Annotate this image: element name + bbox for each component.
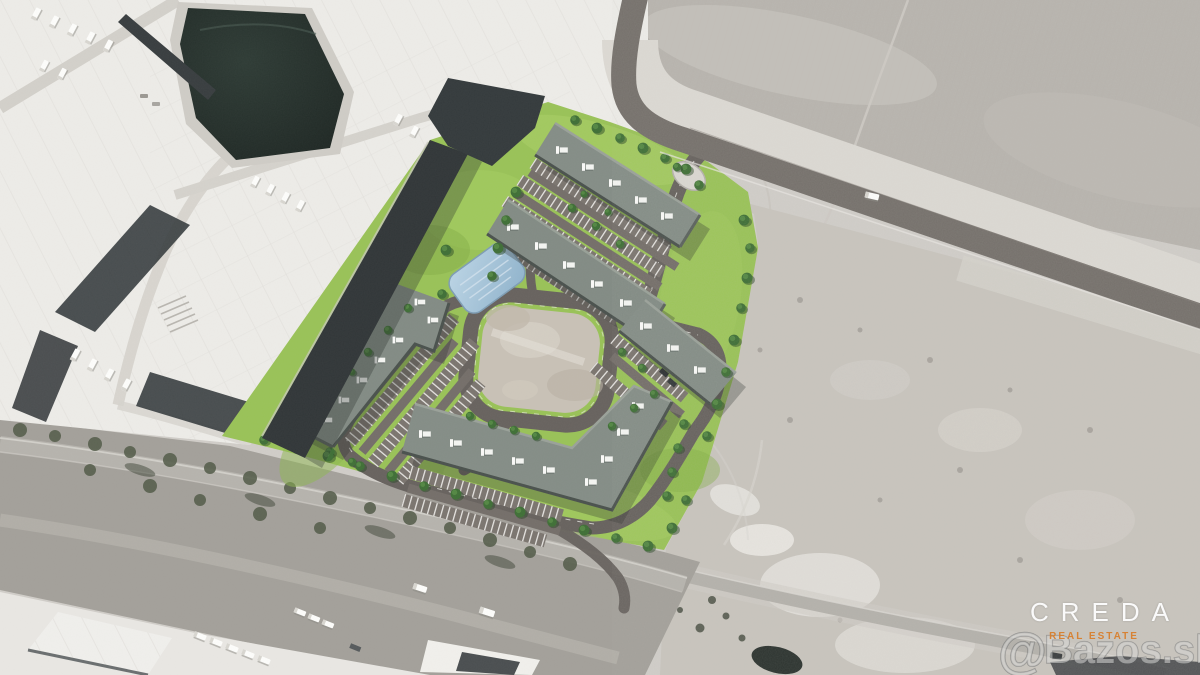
creda-tagline: REAL ESTATE — [1018, 631, 1168, 642]
terrain-grain — [640, 0, 1200, 675]
creda-logo: CREDA — [1018, 597, 1168, 628]
aerial-photo: @ Bazos.sk CREDA REAL ESTATE — [0, 0, 1200, 675]
aerial-scene: @ Bazos.sk — [0, 0, 1200, 675]
